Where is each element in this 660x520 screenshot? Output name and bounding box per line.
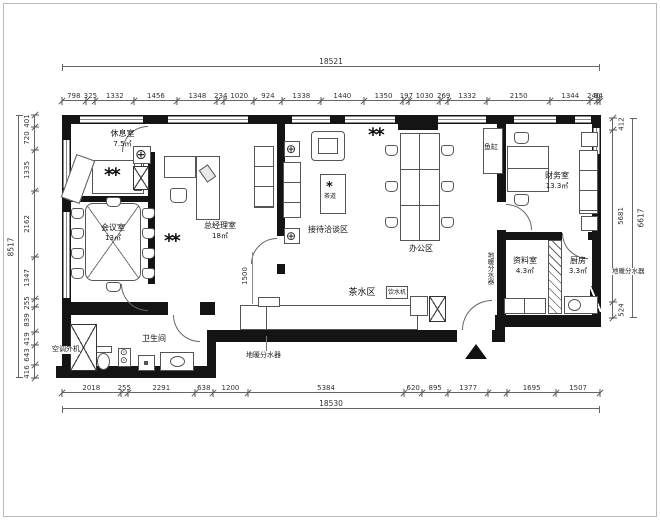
chair — [142, 228, 155, 239]
room-area: 3.3㎡ — [560, 266, 596, 276]
room-name: 厨房 — [560, 255, 596, 266]
room-name: 办公区 — [398, 243, 444, 254]
chair — [106, 282, 121, 292]
chair — [71, 228, 84, 239]
speaker-icon: ⊕ — [286, 230, 296, 242]
dim-label: 255 — [23, 296, 31, 309]
wall-int-v2-stub — [277, 264, 285, 274]
wall-int-h2a — [62, 302, 168, 315]
dim-label: 197 — [400, 92, 413, 100]
dim-label: 1030 — [416, 92, 434, 100]
dim-label: 895 — [429, 384, 442, 392]
room-area: 13.3㎡ — [534, 181, 580, 191]
room-name: 资料室 — [504, 255, 546, 266]
dim-total-top: 18521 — [62, 66, 600, 67]
dim-label: 524 — [617, 303, 625, 316]
wall-step-left — [207, 330, 216, 378]
chair — [514, 194, 529, 206]
room-name: 接待洽谈区 — [296, 224, 360, 235]
dim-label: 94 — [594, 92, 603, 100]
dim-label: 255 — [118, 384, 131, 392]
room-name: 卫生间 — [132, 333, 176, 344]
dim-label: 1200 — [222, 384, 240, 392]
room-label-kitchen: 厨房 3.3㎡ — [560, 255, 596, 276]
burner-icon: ⊙ — [120, 357, 128, 366]
dim-chain-bottom: 2018255229163812005384620895137716951507 — [62, 392, 600, 393]
dim-label: 325 — [84, 92, 97, 100]
room-area: 4.3㎡ — [504, 266, 546, 276]
dim-label: 1332 — [458, 92, 476, 100]
dim-label: 1440 — [333, 92, 351, 100]
chair — [441, 217, 454, 228]
dim-label: 924 — [261, 92, 274, 100]
archive-cabinet — [504, 298, 546, 314]
dim-label: 1348 — [188, 92, 206, 100]
fridge — [410, 296, 428, 316]
counter-sink — [258, 297, 280, 307]
dim-label: 620 — [407, 384, 420, 392]
room-label-finance: 财务室 13.3㎡ — [534, 170, 580, 191]
dim-total-top-value: 18521 — [319, 57, 343, 66]
office-desk-bank — [400, 133, 440, 241]
toilet-bowl — [97, 353, 110, 370]
wall-bottom-right — [497, 315, 601, 327]
archive-shelf — [548, 240, 562, 314]
window — [438, 116, 486, 123]
dim-total-right: 6617 — [632, 118, 633, 318]
window — [575, 116, 591, 123]
interior-dim-1500: 1500 — [241, 267, 249, 285]
dim-label: 1338 — [292, 92, 310, 100]
window — [345, 116, 395, 123]
chair — [142, 268, 155, 279]
wall-bottom-mid-b — [492, 330, 505, 342]
room-label-archive: 资料室 4.3㎡ — [504, 255, 546, 276]
chair — [441, 145, 454, 156]
dim-label: 1347 — [23, 269, 31, 287]
dim-label: 1344 — [561, 92, 579, 100]
chair — [106, 197, 121, 207]
chair — [71, 248, 84, 259]
window — [292, 116, 330, 123]
dim-label: 1507 — [569, 384, 587, 392]
manager-sofa — [254, 146, 274, 208]
side-table — [581, 132, 598, 147]
floor-plan-canvas: ** ⊕ ** ⊕ ⊕ * 茶道 — [0, 0, 660, 520]
dim-label: 1335 — [23, 161, 31, 179]
wall-int-h2b — [200, 302, 215, 315]
window — [63, 212, 70, 298]
dim-label: 720 — [23, 132, 31, 145]
chair — [385, 181, 398, 192]
chair — [385, 145, 398, 156]
dim-label: 269 — [437, 92, 450, 100]
room-area: 7.5㎡ — [95, 139, 150, 149]
counter-divider — [266, 305, 267, 330]
window — [168, 116, 248, 123]
chair — [71, 208, 84, 219]
toilet-tank — [95, 346, 112, 353]
floor-heating-manifold-label-right: 地暖分水器 — [612, 268, 645, 275]
plant-icon: ** — [164, 236, 178, 246]
room-label-office: 办公区 — [398, 243, 444, 254]
desk-divider — [400, 205, 440, 206]
interior-dim-line — [252, 252, 253, 304]
dim-chain-top: 7983251332145613482341020924133814401350… — [62, 100, 600, 101]
leader-line — [266, 336, 267, 351]
room-name: 会议室 — [85, 222, 141, 233]
dim-label: 1377 — [459, 384, 477, 392]
dim-label: 2150 — [510, 92, 528, 100]
dim-total-bottom-value: 18530 — [319, 399, 343, 408]
dim-label: 643 — [23, 349, 31, 362]
room-name: 财务室 — [534, 170, 580, 181]
room-name: 总经理室 — [188, 220, 252, 231]
room-label-reception: 接待洽谈区 — [296, 224, 360, 235]
reception-sofa — [283, 162, 301, 218]
room-name: 休息室 — [95, 128, 150, 139]
room-label-manager: 总经理室 18㎡ — [188, 220, 252, 241]
window — [80, 116, 143, 123]
dim-label: 1695 — [523, 384, 541, 392]
water-dispenser: 饮水机 — [386, 286, 408, 299]
dim-total-bottom: 18530 — [62, 408, 600, 409]
chair — [71, 268, 84, 279]
dim-label: 798 — [67, 92, 80, 100]
dim-label: 412 — [617, 118, 625, 131]
dim-chain-right: 4125681524 — [612, 118, 613, 318]
plant-icon: * — [326, 184, 330, 191]
side-table — [581, 216, 598, 231]
dim-label: 416 — [23, 365, 31, 378]
chair — [441, 181, 454, 192]
speaker-icon: ⊕ — [286, 143, 296, 155]
wall-pier-office — [398, 115, 438, 130]
dim-label: 234 — [214, 92, 227, 100]
shower-drain — [144, 361, 148, 365]
finance-sofa — [579, 150, 598, 214]
dim-label: 1332 — [106, 92, 124, 100]
dim-label: 5681 — [617, 207, 625, 225]
dim-label: 2162 — [23, 215, 31, 233]
cabinet-divider — [524, 298, 525, 314]
armchair-cushion — [318, 138, 338, 154]
wall-int-h3b — [588, 232, 601, 240]
entrance-marker-triangle — [465, 344, 487, 359]
chair — [142, 208, 155, 219]
dim-chain-left: 401720133521621347255839419643416 — [34, 115, 35, 378]
ac-outdoor-unit-label: 空调外机 — [52, 346, 80, 354]
window — [514, 116, 556, 123]
dim-label: 2291 — [152, 384, 170, 392]
dim-label: 638 — [197, 384, 210, 392]
dim-total-right-value: 6617 — [637, 208, 646, 227]
dim-total-left-value: 8517 — [7, 237, 16, 256]
chair — [514, 132, 529, 144]
room-area: 18㎡ — [188, 231, 252, 241]
fan-icon: ⊕ — [135, 148, 147, 162]
manager-desk-return — [164, 156, 196, 178]
wardrobe — [133, 166, 149, 190]
floor-heating-manifold-label-bottom: 地暖分水器 — [246, 352, 281, 360]
wall-bottom-mid-a — [207, 330, 457, 342]
dim-label: 1456 — [147, 92, 165, 100]
room-label-tea: 茶水区 — [338, 285, 386, 298]
dim-label: 1350 — [375, 92, 393, 100]
dim-label: 401 — [23, 114, 31, 127]
room-label-meeting: 会议室 13㎡ — [85, 222, 141, 243]
desk-divider — [419, 133, 420, 241]
dim-label: 5384 — [317, 384, 335, 392]
dim-label: 1020 — [230, 92, 248, 100]
manager-chair — [170, 188, 187, 203]
plant-icon: ** — [368, 130, 382, 140]
room-label-rest: 休息室 7.5㎡ — [95, 128, 150, 149]
room-name: 茶水区 — [338, 285, 386, 298]
chair — [385, 217, 398, 228]
room-label-bathroom: 卫生间 — [132, 333, 176, 344]
chair — [142, 248, 155, 259]
wall-int-h3a — [506, 232, 562, 240]
desk-divider — [400, 169, 440, 170]
dim-label: 419 — [23, 332, 31, 345]
fish-tank-label: 鱼缸 — [484, 144, 498, 152]
plant-icon: ** — [104, 170, 118, 180]
dim-total-left: 8517 — [18, 115, 19, 378]
kitchen-sink — [568, 299, 581, 311]
table-decor-text: 茶道 — [324, 194, 336, 201]
water-dispenser-label: 饮水机 — [387, 287, 407, 296]
shaft — [429, 296, 446, 322]
room-area: 13㎡ — [85, 233, 141, 243]
basin — [170, 356, 185, 367]
floor-heating-manifold-label-vertical: 地暖分水器 — [485, 252, 495, 285]
dim-label: 2018 — [82, 384, 100, 392]
desk-divider — [507, 168, 549, 169]
dim-label: 839 — [23, 313, 31, 326]
